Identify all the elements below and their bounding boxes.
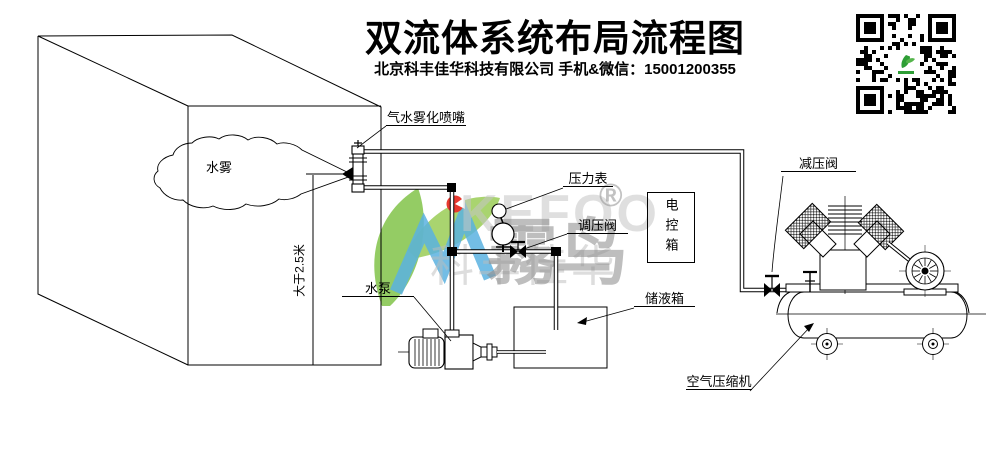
reducing-valve-label: 减压阀 [781, 156, 856, 172]
regulating-valve-label: 调压阀 [567, 218, 628, 234]
water-pump-label: 水泵 [342, 281, 414, 297]
regulating-valve-symbol [510, 242, 526, 258]
flow-diagram-page: KEFOO 科丰佳华 霧鸟 ® [0, 0, 992, 460]
nozzle-label: 气水雾化喷嘴 [386, 110, 466, 126]
storage-tank-shape [514, 307, 607, 368]
air-compressor-label: 空气压缩机 [686, 374, 752, 390]
control-box-label: 电控箱 [662, 198, 681, 258]
qr-modules [856, 14, 956, 114]
storage-tank-label: 储液箱 [634, 291, 695, 307]
pressure-gauge-assembly [492, 204, 514, 252]
mist-cloud [154, 135, 351, 210]
nozzle-pole [306, 174, 350, 365]
control-box: 电控箱 [647, 192, 695, 263]
diagram-canvas [0, 0, 992, 460]
min-height-label: 大于2.5米 [293, 224, 308, 318]
spray-room-box [38, 35, 381, 365]
reducing-valve-symbol [764, 276, 780, 297]
mist-label: 水雾 [200, 160, 238, 175]
qr-code [856, 14, 956, 114]
air-compressor-group [776, 196, 986, 360]
pressure-gauge-label: 压力表 [563, 171, 613, 187]
atomizing-nozzle [342, 140, 367, 192]
